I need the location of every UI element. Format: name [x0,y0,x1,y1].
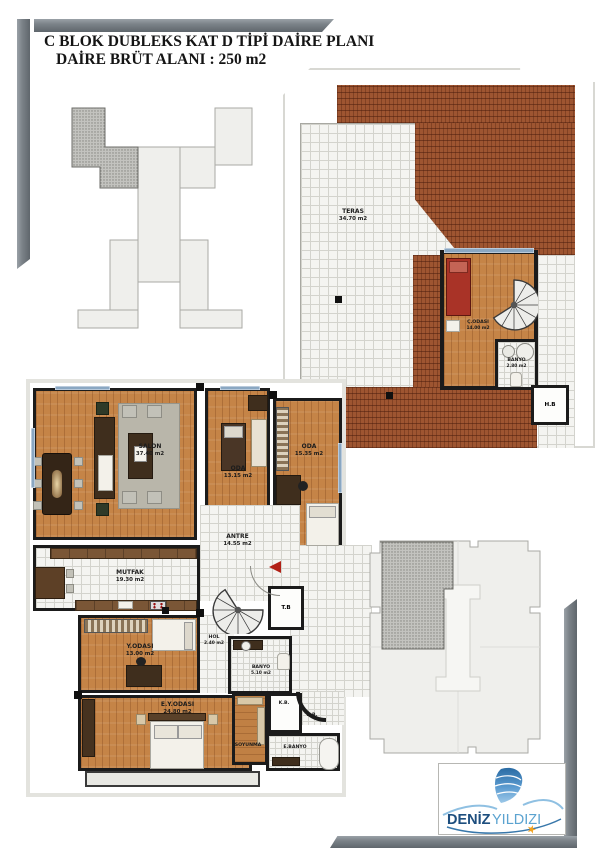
toilet-icon [510,372,522,387]
keyplan-top-unit-highlight [72,108,138,188]
coffee-table [128,433,153,479]
headboard [148,713,206,721]
entrance-arrow-icon [269,561,281,573]
kitchen-counter-bottom [75,600,197,611]
kitchen-sink-icon [118,601,133,609]
vanity-counter [272,757,300,766]
nightstand [208,714,218,725]
column-marker [269,391,277,399]
pillow [224,426,243,438]
pillow [449,261,468,273]
bed-upper [446,258,471,316]
pillow [178,725,202,739]
column-marker [74,691,82,699]
column-marker [335,296,342,303]
plan-title: C BLOK DUBLEKS KAT D TİPİ DAİRE PLANI [44,33,374,51]
tray [134,446,147,462]
salon-window-top [55,386,110,390]
dresser [248,395,268,411]
title-block: C BLOK DUBLEKS KAT D TİPİ DAİRE PLANI DA… [44,33,374,69]
chair [33,501,42,510]
pillow [154,725,178,739]
wardrobe [251,419,267,467]
keyplan-bottom-unit-highlight [380,542,453,649]
room-label-hb: H.B [544,402,555,408]
frame-bar-bottom [330,836,577,848]
frame-bar-top [34,19,334,32]
keyplan-top-locator [55,95,267,337]
desk-y-odasi [126,665,162,687]
wave-swoosh-right [523,800,563,809]
room-label-tb: T.B [281,605,290,611]
keyplan-bottom-locator [358,527,558,762]
armchair [147,405,162,418]
spiral-stair-upper [490,276,538,334]
desk-chair [298,481,308,491]
sink-icon [502,345,515,358]
chair [74,457,83,466]
bed-y-odasi [152,619,196,651]
oda2-window [338,443,342,493]
chair [74,479,83,488]
main-floor-plan: SALON37.40 m2 ODA13.15 m2 ODA15.35 m2 [30,383,342,793]
bed-oda1 [221,423,246,471]
logo-brand-primary: DENİZ [447,811,491,828]
nightstand [136,714,146,725]
toilet-icon [277,653,290,670]
plan-subtitle: DAİRE BRÜT ALANI : 250 m2 [56,51,374,69]
upper-room-window [444,248,534,253]
logo-box: DENİZ YILDIZI ★ [438,763,566,835]
hb-shaft: H.B [531,385,569,425]
table-runner [52,470,62,498]
chair [66,584,74,593]
column-marker [162,607,169,614]
column-marker [196,383,204,391]
frame-bar-left [17,19,30,269]
nightstand-upper [446,320,460,332]
sofa [98,455,113,491]
closet-cabinet [257,707,265,745]
plan-sheet: C BLOK DUBLEKS KAT D TİPİ DAİRE PLANI DA… [0,0,600,848]
bedroom-balcony [85,771,260,787]
armchair [122,405,137,418]
banyo-room: BANYO5.10 m2 [228,636,292,694]
closet-cabinet [237,697,263,705]
oda1-window [220,386,260,390]
column-marker [386,392,393,399]
salon-window-left [31,428,35,488]
wardrobe-ey [82,699,95,757]
plant-icon [96,503,109,516]
kitchen-table [35,567,65,599]
bathtub-icon [319,738,339,770]
bed-ey-odasi [150,721,204,769]
desk-oda2 [276,475,301,505]
dining-table [42,453,72,515]
pillow [184,622,193,650]
chair [66,569,74,578]
shower-basin-icon [516,343,534,361]
kitchen-counter-top [50,548,197,559]
chair [74,501,83,510]
wardrobe-oda2 [276,407,289,471]
column-marker [196,609,204,617]
roof-brick-top [337,85,575,123]
desk-chair [136,657,146,666]
roof-brick-column [413,255,440,388]
sail-icon [495,768,522,803]
sink-icon [241,641,251,651]
plant-icon [96,402,109,415]
armchair [147,491,162,504]
wardrobe-y-odasi [84,619,148,633]
logo-graphic: DENİZ YILDIZI ★ [439,764,565,834]
upper-bathroom: BANYO2.80 m2 [495,339,538,390]
bed-oda2 [306,503,339,546]
pillow [309,506,336,518]
armchair [122,491,137,504]
spiral-stair-main [209,586,267,634]
e-banyo-room [266,733,340,771]
soyunma-room [232,693,268,765]
